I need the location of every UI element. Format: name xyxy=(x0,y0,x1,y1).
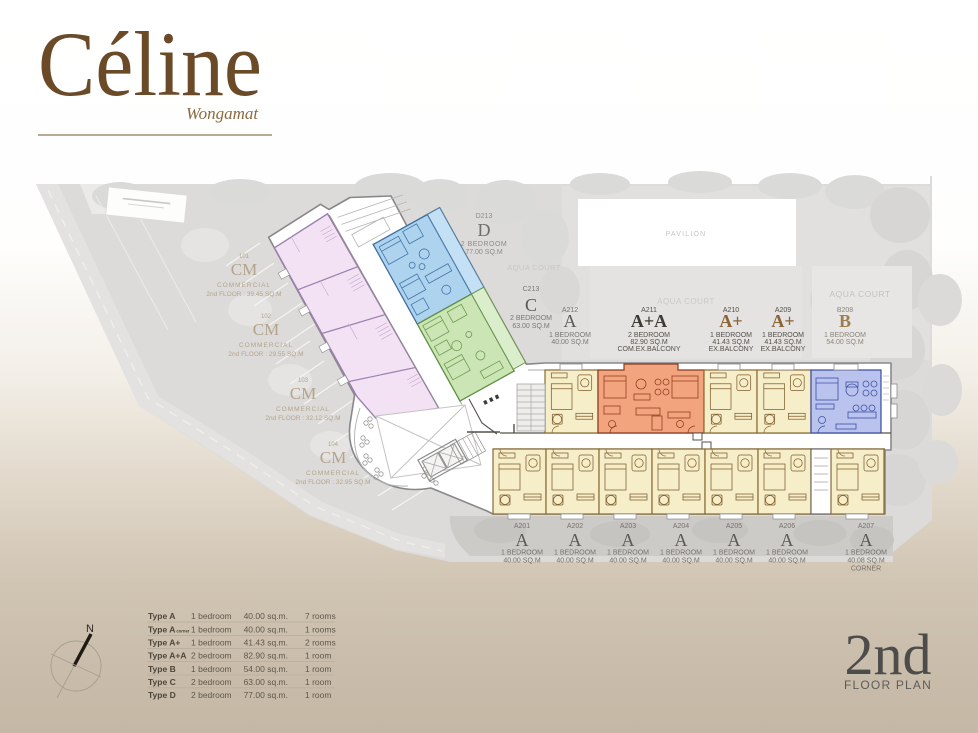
svg-text:2nd FLOOR : 32.95 SQ.M: 2nd FLOOR : 32.95 SQ.M xyxy=(295,479,370,486)
svg-text:A205: A205 xyxy=(726,523,742,530)
svg-text:40.00 SQ.M: 40.00 SQ.M xyxy=(551,339,589,346)
svg-text:82.90 SQ.M: 82.90 SQ.M xyxy=(630,339,668,346)
svg-text:2 bedroom: 2 bedroom xyxy=(191,651,232,661)
svg-text:77.00 SQ.M: 77.00 SQ.M xyxy=(465,249,503,256)
svg-text:FLOOR PLAN: FLOOR PLAN xyxy=(844,678,932,692)
svg-text:41.43 SQ.M: 41.43 SQ.M xyxy=(764,339,802,346)
svg-text:1 BEDROOM: 1 BEDROOM xyxy=(766,550,808,557)
svg-text:COMMERCIAL: COMMERCIAL xyxy=(306,470,360,477)
svg-text:A206: A206 xyxy=(779,523,795,530)
svg-text:A+: A+ xyxy=(771,311,794,331)
svg-text:Type D: Type D xyxy=(148,690,176,700)
svg-text:40.08 SQ.M: 40.08 SQ.M xyxy=(847,558,885,565)
svg-text:1 bedroom: 1 bedroom xyxy=(191,624,232,634)
svg-text:Type A: Type A xyxy=(148,611,175,621)
svg-text:Type A+A: Type A+A xyxy=(148,651,187,661)
svg-text:40.00 SQ.M: 40.00 SQ.M xyxy=(609,558,647,565)
svg-text:40.00 SQ.M: 40.00 SQ.M xyxy=(503,558,541,565)
svg-text:A: A xyxy=(728,530,741,550)
svg-text:A: A xyxy=(675,530,688,550)
svg-text:2 bedroom: 2 bedroom xyxy=(191,690,232,700)
svg-text:COMMERCIAL: COMMERCIAL xyxy=(217,282,271,289)
svg-text:CM: CM xyxy=(290,384,316,403)
svg-text:A: A xyxy=(781,530,794,550)
svg-text:CM: CM xyxy=(253,320,279,339)
svg-text:2 rooms: 2 rooms xyxy=(305,637,336,647)
svg-text:1 BEDROOM: 1 BEDROOM xyxy=(762,332,804,339)
svg-text:D213: D213 xyxy=(476,213,493,220)
svg-text:41.43 sq.m.: 41.43 sq.m. xyxy=(244,637,288,647)
svg-text:1 BEDROOM: 1 BEDROOM xyxy=(549,332,591,339)
svg-text:1 BEDROOM: 1 BEDROOM xyxy=(710,332,752,339)
svg-text:41.43 SQ.M: 41.43 SQ.M xyxy=(712,339,750,346)
svg-text:1 room: 1 room xyxy=(305,677,331,687)
svg-text:CM: CM xyxy=(231,260,257,279)
svg-text:7 rooms: 7 rooms xyxy=(305,611,336,621)
svg-text:B: B xyxy=(839,311,851,331)
svg-text:C: C xyxy=(525,295,537,315)
svg-text:1 bedroom: 1 bedroom xyxy=(191,637,232,647)
svg-text:1 bedroom: 1 bedroom xyxy=(191,664,232,674)
svg-text:Type C: Type C xyxy=(148,677,176,687)
svg-text:EX.BALCONY: EX.BALCONY xyxy=(761,346,806,353)
svg-text:1 BEDROOM: 1 BEDROOM xyxy=(607,550,649,557)
svg-text:1 BEDROOM: 1 BEDROOM xyxy=(554,550,596,557)
svg-text:1 BEDROOM: 1 BEDROOM xyxy=(845,550,887,557)
svg-text:1 BEDROOM: 1 BEDROOM xyxy=(713,550,755,557)
svg-text:2nd FLOOR : 32.12 SQ.M: 2nd FLOOR : 32.12 SQ.M xyxy=(265,415,340,422)
svg-text:2 BEDROOM: 2 BEDROOM xyxy=(628,332,670,339)
svg-text:A204: A204 xyxy=(673,523,689,530)
svg-text:40.00 sq.m.: 40.00 sq.m. xyxy=(244,624,288,634)
svg-text:2 bedroom: 2 bedroom xyxy=(191,677,232,687)
svg-text:40.00 sq.m.: 40.00 sq.m. xyxy=(244,611,288,621)
svg-text:Wongamat: Wongamat xyxy=(186,104,259,123)
svg-text:63.00 SQ.M: 63.00 SQ.M xyxy=(512,323,550,330)
svg-text:1 rooms: 1 rooms xyxy=(305,624,336,634)
svg-text:A: A xyxy=(569,530,582,550)
svg-text:Type A+: Type A+ xyxy=(148,637,180,647)
svg-text:A: A xyxy=(516,530,529,550)
svg-text:Type Acorner: Type Acorner xyxy=(148,624,190,634)
svg-text:A+A: A+A xyxy=(631,311,667,331)
svg-text:2nd FLOOR : 29.55 SQ.M: 2nd FLOOR : 29.55 SQ.M xyxy=(228,351,303,358)
svg-text:C213: C213 xyxy=(523,286,540,293)
svg-text:2nd FLOOR : 39.45 SQ.M: 2nd FLOOR : 39.45 SQ.M xyxy=(206,291,281,298)
svg-text:A203: A203 xyxy=(620,523,636,530)
svg-text:A+: A+ xyxy=(719,311,742,331)
svg-text:CORNER: CORNER xyxy=(851,566,881,573)
svg-text:40.00 SQ.M: 40.00 SQ.M xyxy=(662,558,700,565)
svg-text:Céline: Céline xyxy=(38,13,262,115)
svg-text:1 BEDROOM: 1 BEDROOM xyxy=(501,550,543,557)
svg-text:40.00 SQ.M: 40.00 SQ.M xyxy=(715,558,753,565)
svg-text:A202: A202 xyxy=(567,523,583,530)
svg-text:N: N xyxy=(86,623,94,635)
svg-text:54.00 sq.m.: 54.00 sq.m. xyxy=(244,664,288,674)
svg-text:COM.EX.BALCONY: COM.EX.BALCONY xyxy=(617,346,680,353)
svg-text:63.00 sq.m.: 63.00 sq.m. xyxy=(244,677,288,687)
svg-text:D: D xyxy=(478,220,491,240)
svg-text:EX.BALCONY: EX.BALCONY xyxy=(709,346,754,353)
svg-text:77.00 sq.m.: 77.00 sq.m. xyxy=(244,690,288,700)
svg-text:1 BEDROOM: 1 BEDROOM xyxy=(660,550,702,557)
svg-text:40.00 SQ.M: 40.00 SQ.M xyxy=(768,558,806,565)
svg-text:COMMERCIAL: COMMERCIAL xyxy=(276,406,330,413)
svg-text:1 bedroom: 1 bedroom xyxy=(191,611,232,621)
svg-text:1 room: 1 room xyxy=(305,651,331,661)
svg-text:A: A xyxy=(564,311,577,331)
svg-text:1 room: 1 room xyxy=(305,664,331,674)
svg-text:A207: A207 xyxy=(858,523,874,530)
svg-text:40.00 SQ.M: 40.00 SQ.M xyxy=(556,558,594,565)
svg-text:54.00 SQ.M: 54.00 SQ.M xyxy=(826,339,864,346)
svg-text:A: A xyxy=(622,530,635,550)
svg-text:2 BEDROOM: 2 BEDROOM xyxy=(461,241,508,248)
svg-text:A201: A201 xyxy=(514,523,530,530)
svg-text:COMMERCIAL: COMMERCIAL xyxy=(239,342,293,349)
svg-text:1 room: 1 room xyxy=(305,690,331,700)
svg-text:2 BEDROOM: 2 BEDROOM xyxy=(510,315,552,322)
svg-text:1 BEDROOM: 1 BEDROOM xyxy=(824,332,866,339)
svg-text:CM: CM xyxy=(320,448,346,467)
svg-text:Type B: Type B xyxy=(148,664,176,674)
svg-text:A: A xyxy=(860,530,873,550)
svg-text:82.90 sq.m.: 82.90 sq.m. xyxy=(244,651,288,661)
